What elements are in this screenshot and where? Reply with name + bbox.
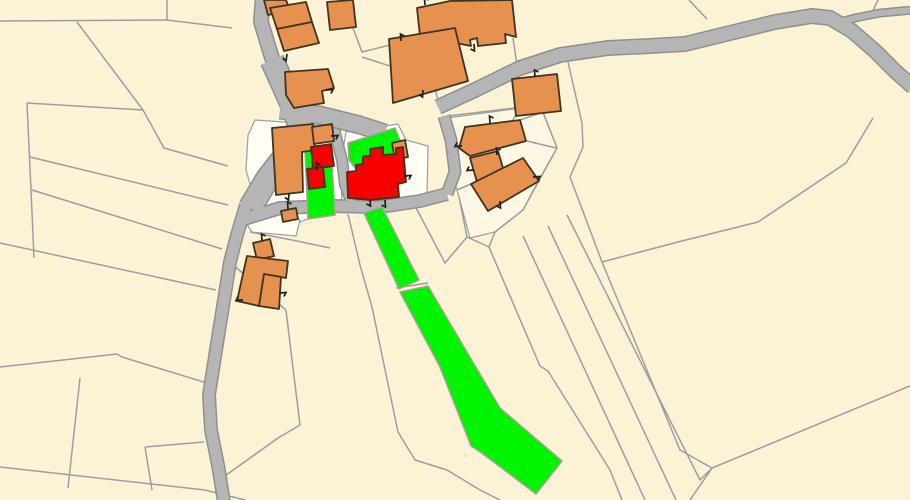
cadastral-map[interactable] [0, 0, 910, 500]
building-west-block-small[interactable] [312, 124, 334, 144]
building-sw-annex[interactable] [259, 274, 281, 309]
map-canvas[interactable] [0, 0, 910, 500]
selected-building-west-lower[interactable] [307, 167, 325, 189]
building-square-small[interactable] [327, 0, 356, 30]
building-square-east[interactable] [512, 74, 561, 116]
parcel-boundary [0, 20, 167, 21]
selected-building-west-upper[interactable] [311, 144, 334, 169]
building-tiny[interactable] [281, 208, 298, 222]
